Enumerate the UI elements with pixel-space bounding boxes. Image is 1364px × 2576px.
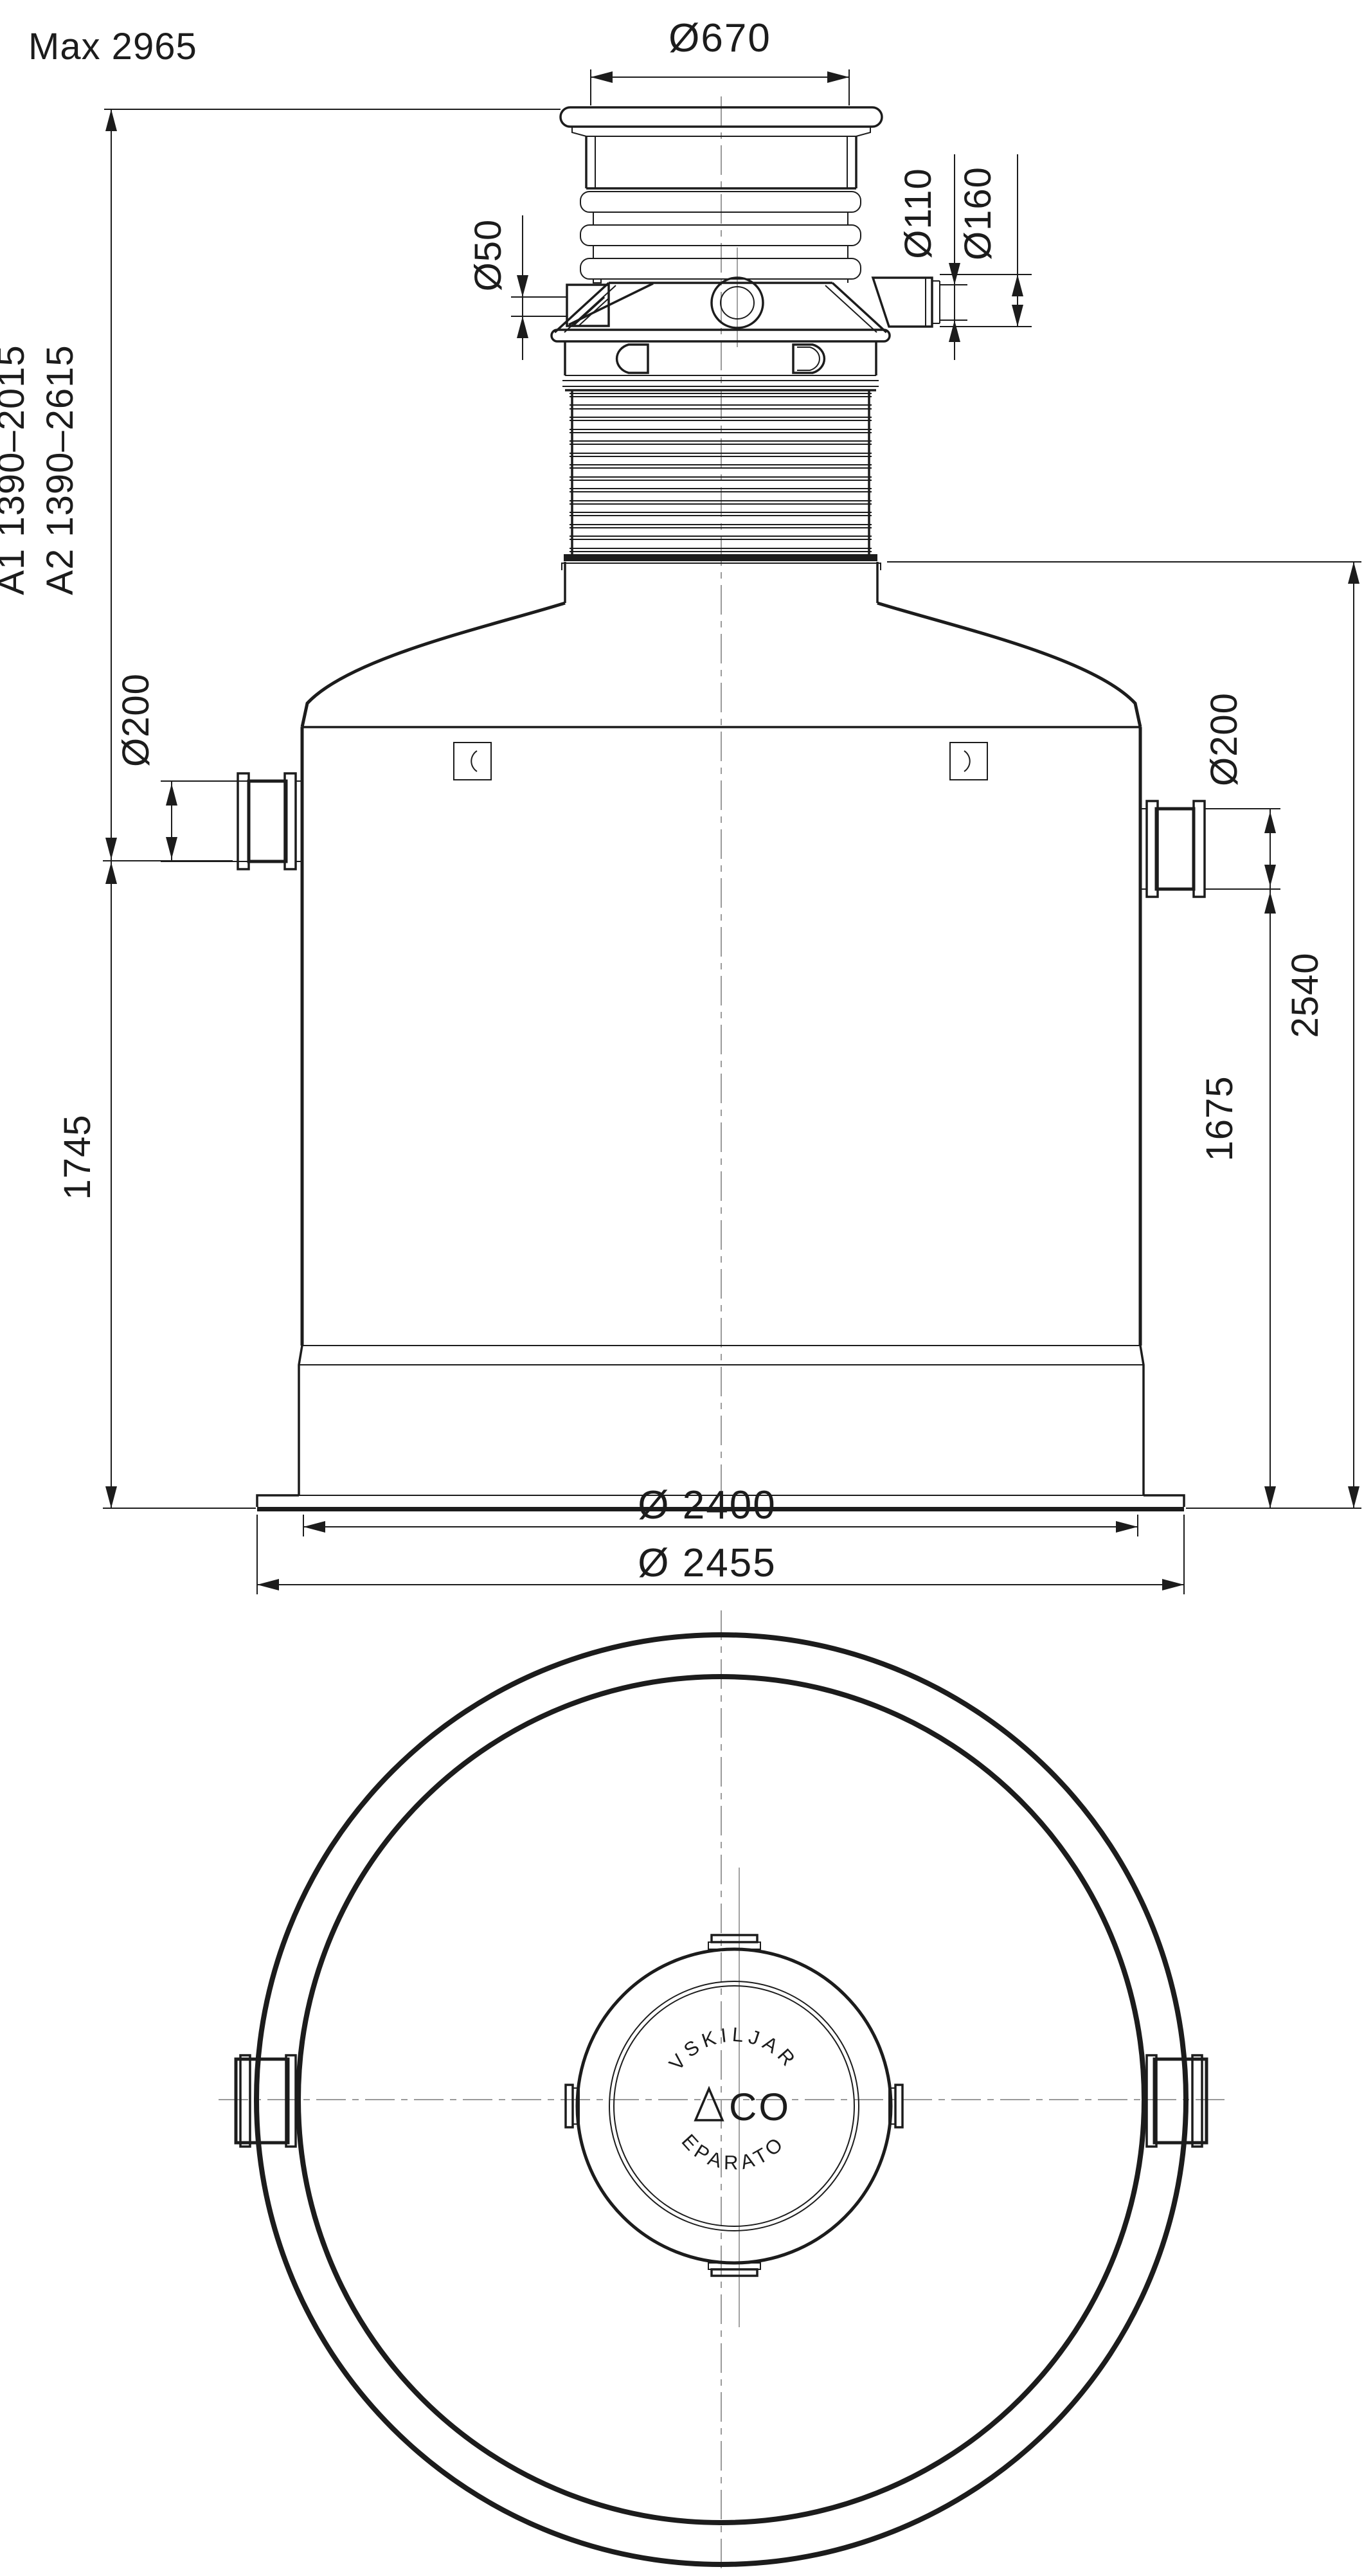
dome-right [877, 603, 1140, 727]
aco-logo-triangle-icon [695, 2089, 722, 2120]
socket-160 [873, 278, 940, 327]
inlet-pipe-left [238, 773, 302, 869]
dim-outlet-invert: 1675 [1199, 1076, 1241, 1161]
dim-cover-diameter: Ø670 [669, 16, 771, 60]
dim-outlet-diameter: Ø200 [1203, 692, 1245, 786]
plan-pipe-stub-east [1147, 2055, 1207, 2147]
dim-tank-diameter: Ø 2400 [638, 1483, 776, 1527]
dim-base-diameter: Ø 2455 [638, 1541, 776, 1585]
aco-logo-text: CO [729, 2085, 791, 2129]
plan-view: AVSKILJARE SEPARATOR CO [0, 0, 1207, 2564]
plan-pipe-stub-west [236, 2055, 296, 2147]
dim-vent: Ø50 [467, 219, 509, 292]
dim-pipe-outer: Ø160 [957, 167, 999, 260]
dim-pipe-inner: Ø110 [897, 168, 939, 259]
dim-a1: A1 1390–2015 [0, 345, 32, 595]
dim-1745: 1745 [57, 1114, 98, 1200]
grip-left [617, 345, 648, 373]
riser-seal-band [564, 554, 877, 561]
dim-200-right: Ø200 [1203, 692, 1280, 889]
dim-2540: 2540 [887, 562, 1361, 1508]
dome-left [302, 603, 565, 727]
tank-tab-right [950, 743, 987, 780]
dim-inlet-diameter: Ø200 [115, 673, 157, 767]
grip-right [793, 345, 824, 373]
dim-max-height: Max 2965 [28, 26, 197, 68]
dim-total-height: 2540 [1284, 952, 1326, 1038]
lid-text-bottom: SEPARATOR [0, 0, 790, 2174]
dim-a2: A2 1390–2615 [39, 345, 81, 595]
dim-670: Ø670 [591, 16, 849, 105]
dim-200-left: Ø200 [115, 673, 249, 861]
lid-tab-north [708, 1935, 760, 1949]
tank-tab-left [454, 743, 491, 780]
dim-1675: 1675 [1186, 889, 1361, 1508]
dim-110-160: Ø110 Ø160 [897, 154, 1032, 360]
separator-technical-drawing: Max 2965 A1 1390–2015 A2 1390–2615 1745 … [0, 0, 1364, 2576]
drawing-page: Max 2965 A1 1390–2015 A2 1390–2615 1745 … [0, 0, 1364, 2576]
turret-cone [552, 278, 940, 390]
outlet-pipe-right [1140, 801, 1205, 897]
lid-tab-south [708, 2263, 760, 2276]
aco-logo: CO [695, 2085, 791, 2129]
